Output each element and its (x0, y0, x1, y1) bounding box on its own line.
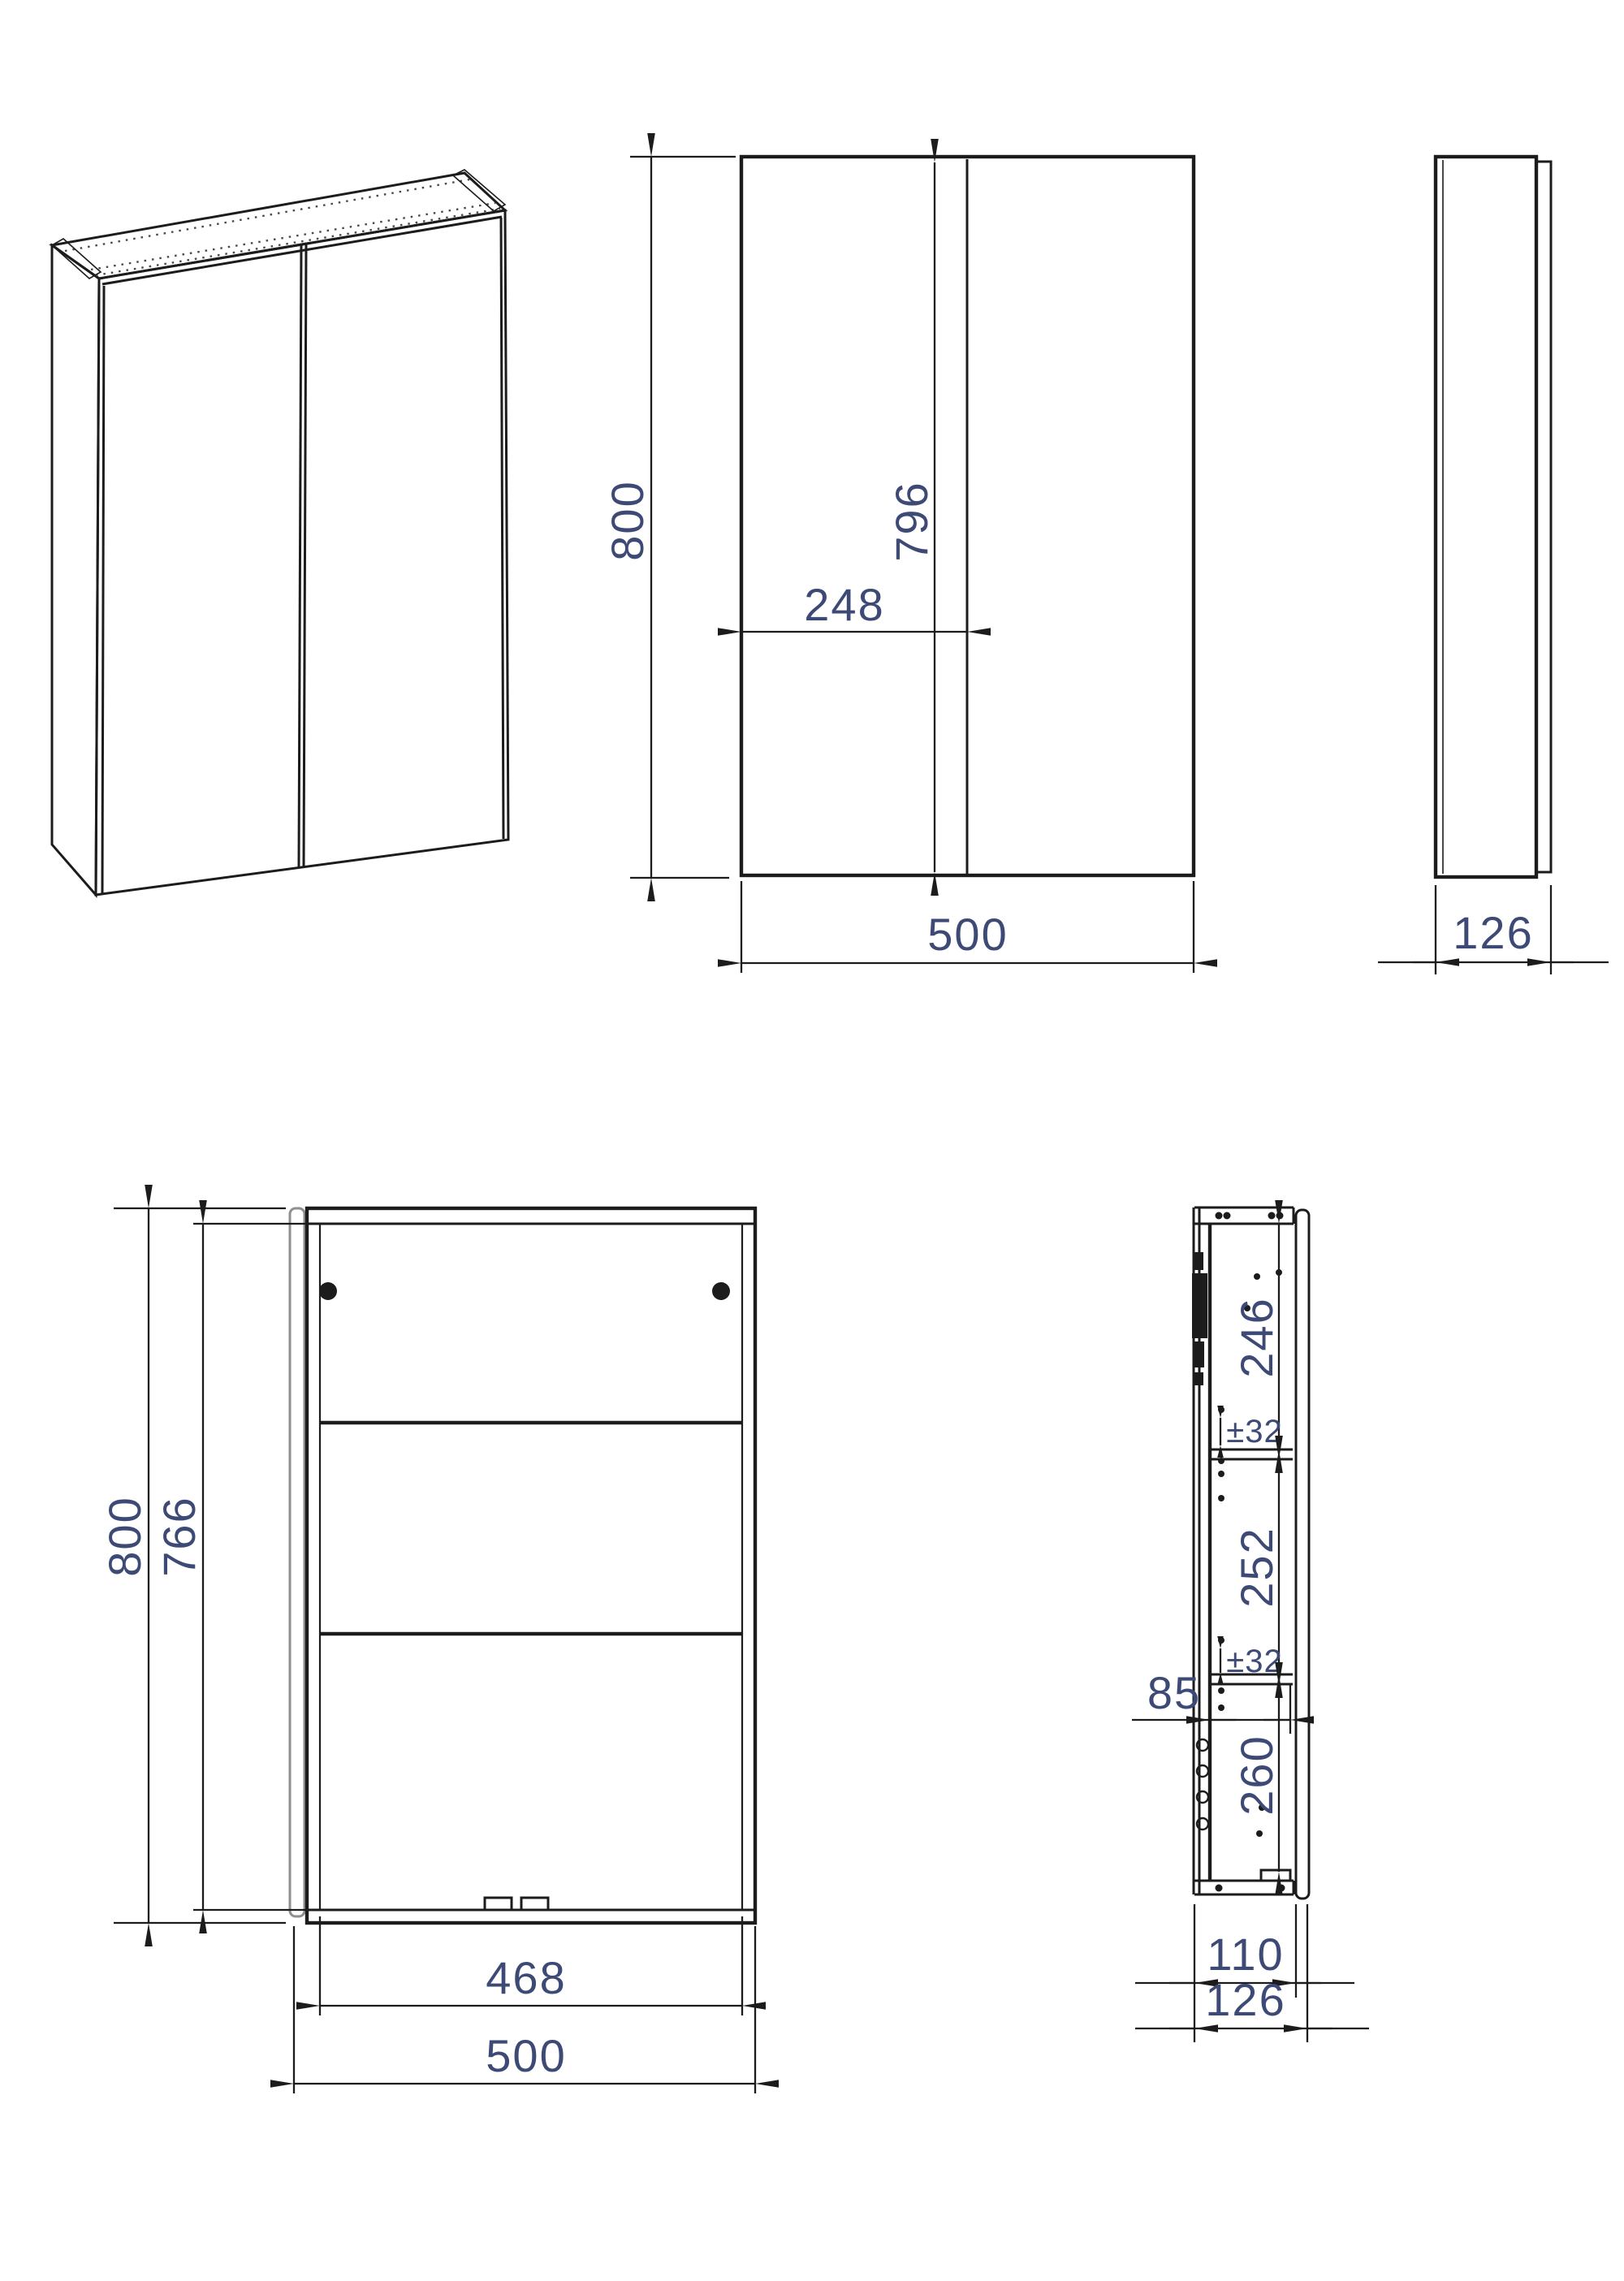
sheet-background (0, 0, 1624, 2281)
front-dim-800-label: 800 (602, 480, 653, 560)
front-dim-500-label: 500 (927, 909, 1008, 960)
hinge-hardware (1192, 1273, 1207, 1338)
shelf-pin-hole (1254, 1273, 1260, 1280)
shelf-pin-hole (1256, 1830, 1263, 1837)
cap-screw-dot (1268, 1212, 1276, 1220)
section-adjust-upper-label: ±32 (1226, 1414, 1282, 1449)
section-dim-252-label: 252 (1231, 1527, 1282, 1607)
shelf-pin-hole (1218, 1704, 1224, 1711)
section-adjust-lower-label: ±32 (1226, 1644, 1282, 1679)
cap-screw-dot (1276, 1212, 1284, 1220)
hinge-hardware (1193, 1252, 1203, 1270)
front-dim-796-label: 796 (886, 481, 937, 561)
shelf-pin-hole (1218, 1458, 1224, 1464)
section-dim-246-label: 246 (1231, 1297, 1282, 1377)
cap-screw-dot (1216, 1885, 1223, 1892)
hinge-hardware (1194, 1341, 1204, 1367)
section-dim-260-label: 260 (1231, 1735, 1282, 1815)
interior-dim-800-label: 800 (99, 1496, 150, 1576)
shelf-pin-hole (1218, 1406, 1224, 1413)
technical-drawing-sheet: 800 796 248 500 126 (0, 0, 1624, 2281)
section-dim-110-label: 110 (1207, 1929, 1284, 1980)
cap-screw-dot (1224, 1212, 1231, 1220)
hinge-hardware (1194, 1372, 1203, 1385)
side-dim-126-label: 126 (1453, 907, 1533, 958)
iso-left-door-edge (102, 286, 104, 893)
hinge-hole-left (319, 1282, 337, 1300)
section-dim-85-label: 85 (1147, 1667, 1201, 1718)
section-dim-126-label: 126 (1205, 1974, 1285, 2025)
front-dim-248-label: 248 (804, 579, 884, 630)
cap-screw-dot (1278, 1885, 1285, 1892)
shelf-pin-hole (1218, 1471, 1224, 1477)
cap-screw-dot (1216, 1212, 1223, 1220)
interior-dim-766-label: 766 (153, 1496, 205, 1576)
interior-dim-500-label: 500 (486, 2030, 566, 2081)
shelf-pin-hole (1218, 1687, 1224, 1694)
interior-dim-468-label: 468 (486, 1952, 566, 2003)
shelf-pin-hole (1218, 1495, 1224, 1501)
cabinet-dimension-drawing: 800 796 248 500 126 (0, 0, 1624, 2281)
hinge-hole-right (712, 1282, 730, 1300)
shelf-pin-hole (1218, 1637, 1224, 1644)
